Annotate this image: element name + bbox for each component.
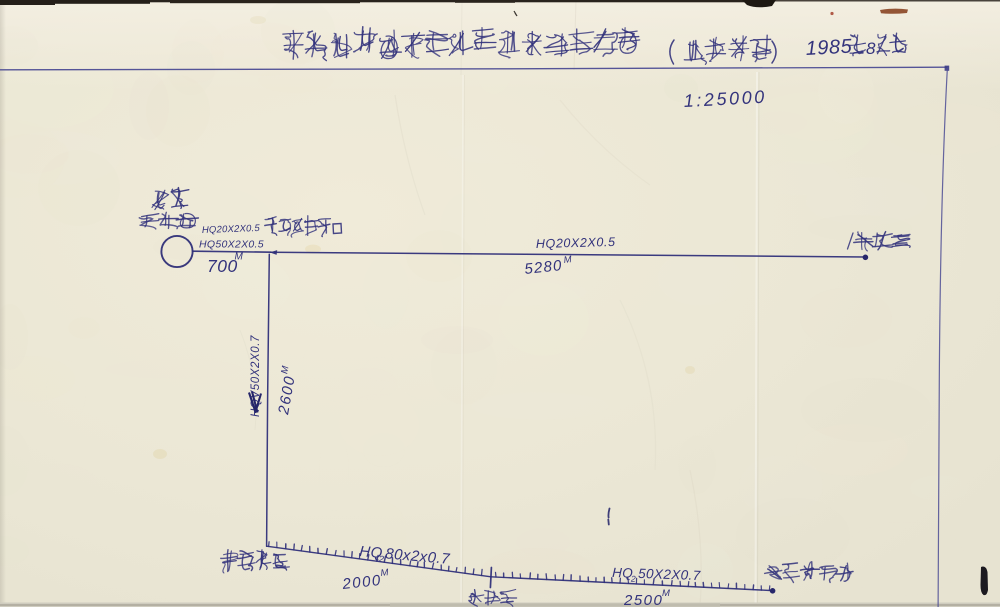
svg-text:HQ20X2X0.5: HQ20X2X0.5 bbox=[536, 235, 616, 251]
svg-text:2: 2 bbox=[377, 554, 384, 564]
svg-text:2500: 2500 bbox=[623, 592, 663, 607]
svg-text:50X2X0.7: 50X2X0.7 bbox=[638, 566, 701, 583]
svg-text:2: 2 bbox=[630, 574, 636, 584]
svg-text:M: M bbox=[662, 588, 670, 599]
svg-text:1985: 1985 bbox=[805, 36, 853, 60]
svg-text:HQ20X2X0.5: HQ20X2X0.5 bbox=[202, 223, 261, 236]
svg-text:700: 700 bbox=[207, 256, 238, 276]
svg-text:HQ50X2X0.5: HQ50X2X0.5 bbox=[199, 239, 264, 251]
svg-text:8: 8 bbox=[866, 39, 876, 58]
svg-text:M: M bbox=[563, 254, 572, 266]
svg-text:M: M bbox=[235, 252, 244, 263]
svg-text:M: M bbox=[380, 567, 389, 579]
